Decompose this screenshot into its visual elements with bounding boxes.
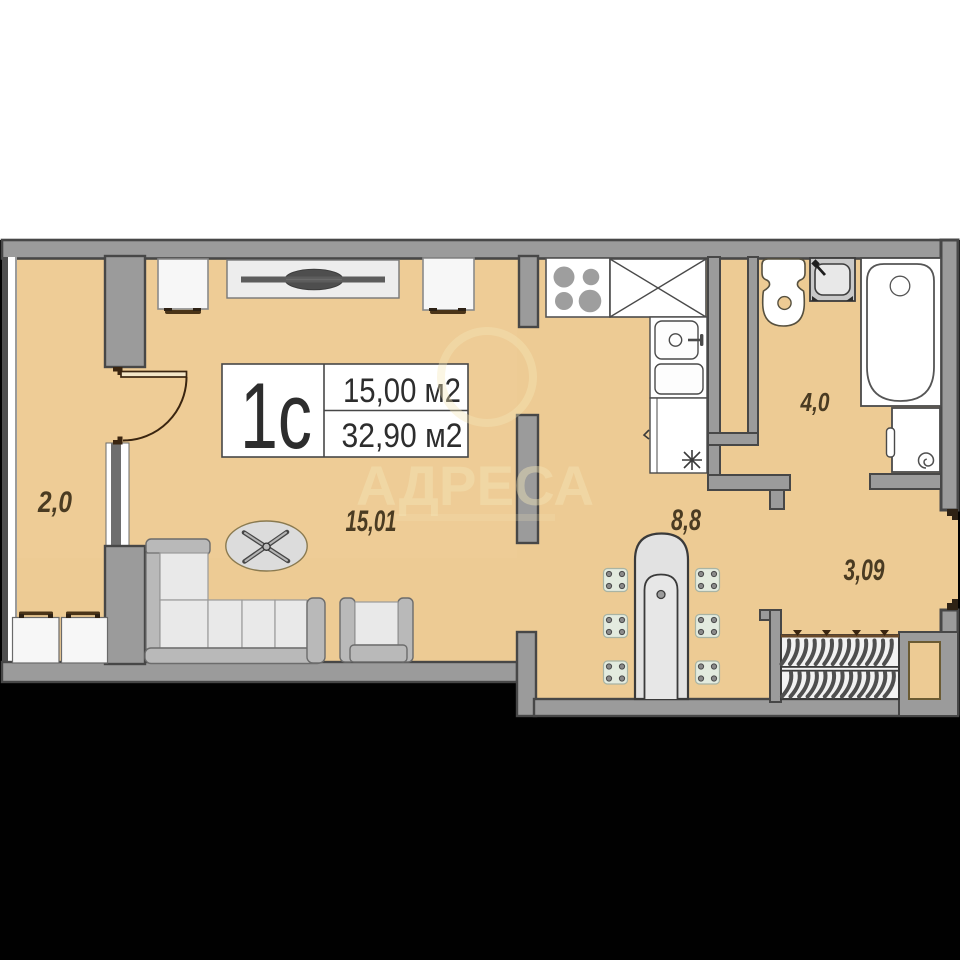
svg-text:3,09: 3,09 bbox=[844, 554, 885, 587]
svg-text:2,0: 2,0 bbox=[37, 486, 72, 519]
svg-text:32,90 м2: 32,90 м2 bbox=[342, 417, 463, 455]
svg-text:1с: 1с bbox=[240, 363, 312, 468]
svg-text:8,8: 8,8 bbox=[671, 504, 701, 537]
svg-text:АДРЕСА: АДРЕСА bbox=[356, 454, 594, 517]
svg-text:4,0: 4,0 bbox=[800, 387, 830, 417]
